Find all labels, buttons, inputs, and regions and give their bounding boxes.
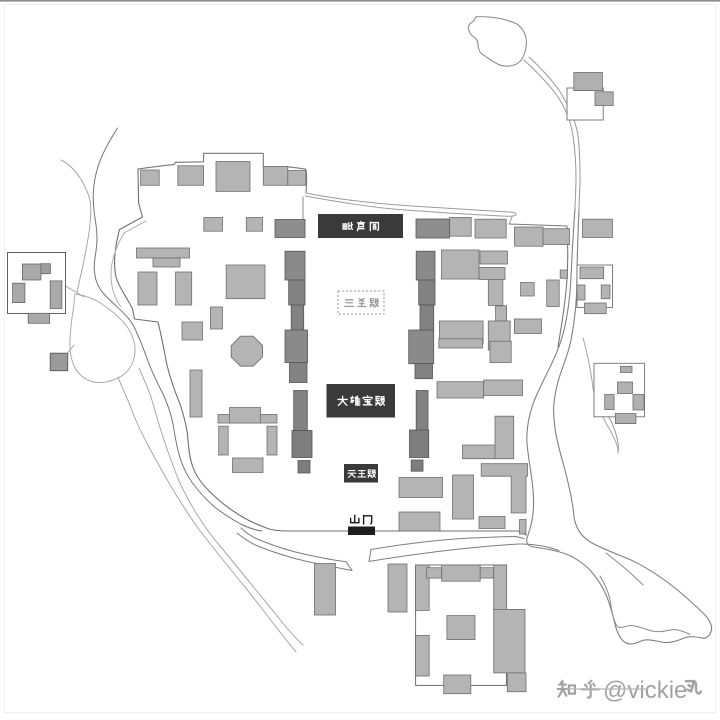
svg-text:@vickie: @vickie: [603, 677, 687, 704]
